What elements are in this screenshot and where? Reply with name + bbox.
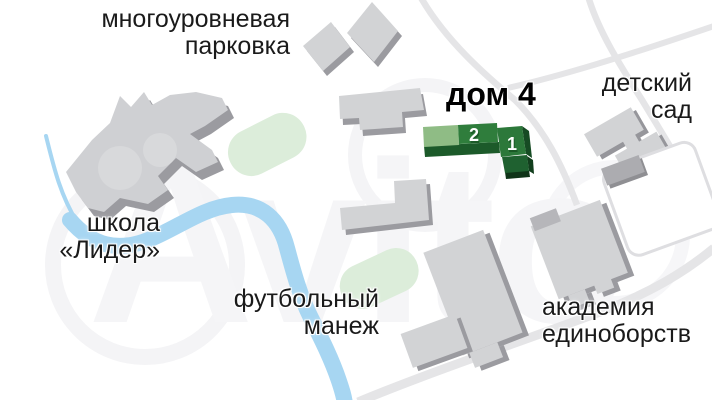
label-line: школа (59, 210, 160, 237)
parking-structure-block (347, 2, 402, 67)
label-line: академия (542, 294, 691, 321)
label-martial-arts-academy: академия единоборств (542, 294, 691, 348)
label-multilevel-parking: многоуровневая парковка (101, 6, 290, 60)
label-line: манеж (234, 313, 379, 340)
label-kindergarten: детский сад (602, 70, 692, 124)
label-football-arena: футбольный манеж (234, 286, 379, 340)
label-line: единоборств (542, 321, 691, 348)
listing-map: Avito (0, 0, 712, 400)
label-line: детский (602, 70, 692, 97)
label-line: сад (602, 97, 692, 124)
label-line: многоуровневая (101, 6, 290, 33)
school-roof-detail (143, 133, 177, 167)
label-line: «Лидер» (59, 237, 160, 264)
parking-structure-block (303, 22, 354, 76)
label-house-4: дом 4 (446, 78, 536, 110)
label-line: парковка (101, 33, 290, 60)
label-line: футбольный (234, 286, 379, 313)
house-step-top (502, 155, 529, 173)
block-top (347, 2, 398, 62)
label-school-lider: школа «Лидер» (59, 210, 160, 264)
block-top (303, 22, 350, 71)
house-block-2-light-top (423, 125, 459, 147)
house-block-1-number[interactable]: 1 (507, 134, 517, 154)
school-roof-detail (98, 146, 142, 190)
house-block-2-number[interactable]: 2 (469, 125, 479, 145)
